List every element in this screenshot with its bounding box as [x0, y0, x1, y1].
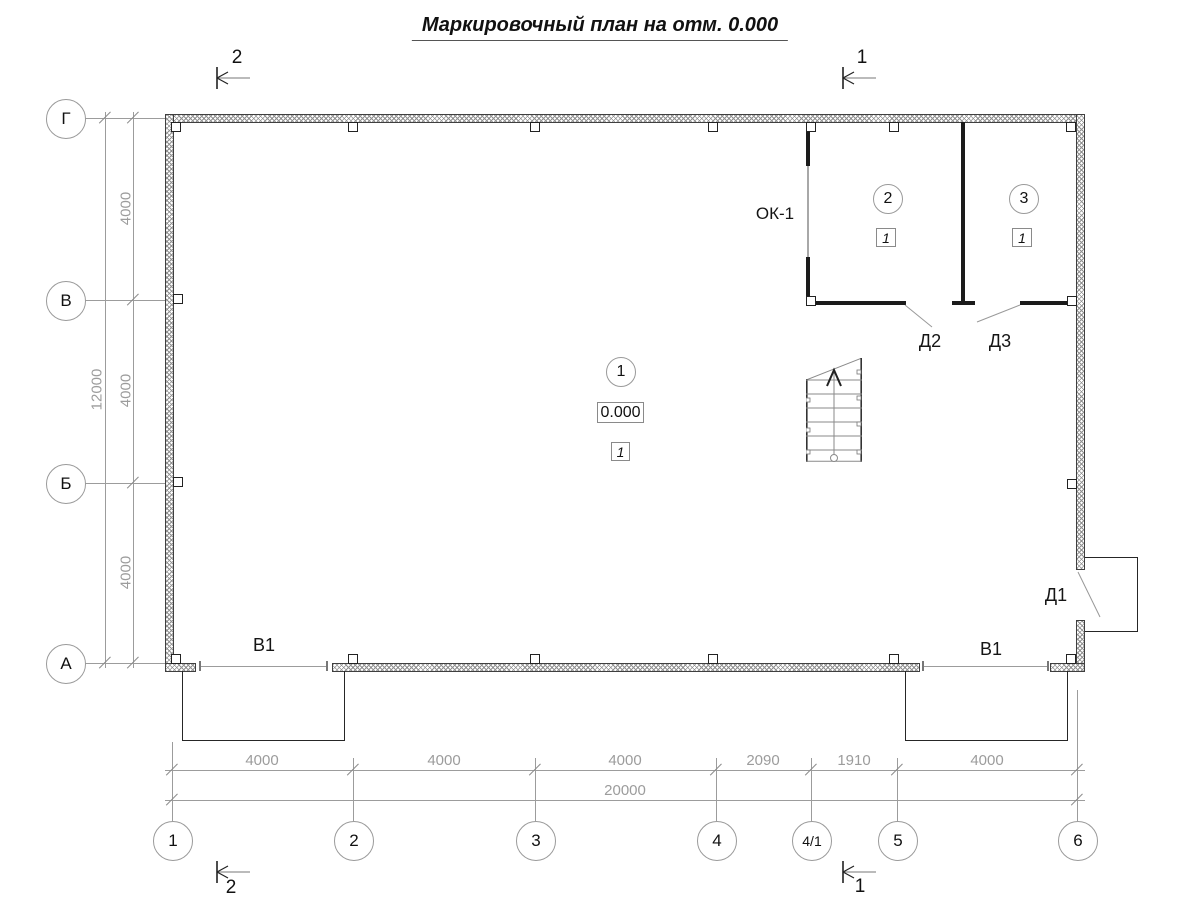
- column: [171, 122, 181, 132]
- column: [1067, 479, 1077, 489]
- grid-label: 1: [168, 831, 177, 851]
- grid-bubble-col-3: 3: [516, 821, 556, 861]
- column: [1067, 296, 1077, 306]
- grid-label: 6: [1073, 831, 1082, 851]
- row-axis-line: [84, 300, 165, 301]
- column: [173, 477, 183, 487]
- section-number: 1: [850, 876, 870, 898]
- room-1-finish-box: 1: [611, 442, 630, 461]
- grid-bubble-row-a: А: [46, 644, 86, 684]
- section-number: 1: [852, 47, 872, 69]
- floor-plan-canvas: Маркировочный план на отм. 0.000 4000 40…: [0, 0, 1200, 900]
- grid-bubble-col-4-1: 4/1: [792, 821, 832, 861]
- column: [889, 654, 899, 664]
- column: [708, 122, 718, 132]
- grid-bubble-col-2: 2: [334, 821, 374, 861]
- grid-label: А: [60, 654, 71, 674]
- grid-label: Г: [61, 109, 70, 129]
- grid-bubble-row-g: Г: [46, 99, 86, 139]
- dim-text: 4000: [232, 752, 292, 769]
- column: [806, 296, 816, 306]
- column: [171, 654, 181, 664]
- grid-bubble-row-b: Б: [46, 464, 86, 504]
- grid-bubble-col-1: 1: [153, 821, 193, 861]
- gate-end-tick: [922, 661, 924, 671]
- dim-text-total: 12000: [89, 358, 106, 422]
- porch-door-d1: [1085, 557, 1138, 632]
- col-axis-line: [1077, 690, 1078, 821]
- dim-text: 4000: [118, 179, 135, 239]
- grid-label: 4/1: [802, 833, 821, 849]
- room-number: 2: [884, 190, 893, 208]
- column: [530, 654, 540, 664]
- staircase: [806, 358, 862, 462]
- column: [708, 654, 718, 664]
- section-number: 2: [221, 877, 241, 899]
- grid-label: 2: [349, 831, 358, 851]
- bottom-dim-line-inner: [165, 770, 1085, 771]
- row-axis-line: [84, 118, 165, 119]
- section-number: 2: [227, 47, 247, 69]
- grid-label: 4: [712, 831, 721, 851]
- dim-text-total: 20000: [593, 782, 657, 799]
- row-axis-line: [84, 663, 165, 664]
- level-value: 0.000: [600, 404, 640, 422]
- room-2-finish-box: 1: [876, 228, 896, 247]
- dim-text: 4000: [595, 752, 655, 769]
- grid-bubble-col-5: 5: [878, 821, 918, 861]
- wall-left: [165, 114, 174, 672]
- grid-label: 5: [893, 831, 902, 851]
- partition-room2-room3: [961, 122, 965, 305]
- bottom-dim-line-outer: [165, 800, 1085, 801]
- dim-text: 4000: [118, 543, 135, 603]
- gate-v1-left-label: В1: [246, 635, 282, 656]
- gate-v1-right-label: В1: [973, 639, 1009, 660]
- col-axis-line: [172, 742, 173, 821]
- room-number: 3: [1020, 190, 1029, 208]
- row-axis-line: [84, 483, 165, 484]
- column: [173, 294, 183, 304]
- column: [348, 122, 358, 132]
- partition-foot: [952, 301, 975, 305]
- door-d3-label: Д3: [982, 331, 1018, 352]
- column: [348, 654, 358, 664]
- column: [530, 122, 540, 132]
- porch-right: [905, 671, 1068, 741]
- gate-end-tick: [1047, 661, 1049, 671]
- grid-bubble-col-4: 4: [697, 821, 737, 861]
- column: [1066, 654, 1076, 664]
- dim-text: 4000: [957, 752, 1017, 769]
- column: [806, 122, 816, 132]
- room-2-number-bubble: 2: [873, 184, 903, 214]
- door-d1-label: Д1: [1038, 585, 1074, 606]
- dim-text: 2090: [733, 752, 793, 769]
- grid-label: В: [60, 291, 71, 311]
- staircase-drawing: [806, 358, 862, 462]
- room-1-level-box: 0.000: [597, 402, 644, 423]
- gate-line-right: [923, 666, 1048, 667]
- room-3-number-bubble: 3: [1009, 184, 1039, 214]
- window-ok1-label: ОК-1: [750, 204, 800, 224]
- finish-type: 1: [617, 444, 625, 460]
- column: [889, 122, 899, 132]
- room-number: 1: [617, 363, 626, 381]
- gate-line-left: [200, 666, 327, 667]
- grid-label: Б: [60, 474, 71, 494]
- grid-bubble-col-6: 6: [1058, 821, 1098, 861]
- partition-rooms-bottom-seg1: [806, 301, 906, 305]
- column: [1066, 122, 1076, 132]
- wall-right-upper: [1076, 114, 1085, 570]
- dim-text: 4000: [414, 752, 474, 769]
- finish-type: 1: [1018, 230, 1026, 246]
- grid-label: 3: [531, 831, 540, 851]
- room-3-finish-box: 1: [1012, 228, 1032, 247]
- grid-bubble-row-v: В: [46, 281, 86, 321]
- wall-bottom-seg2: [332, 663, 920, 672]
- finish-type: 1: [882, 230, 890, 246]
- drawing-title: Маркировочный план на отм. 0.000: [412, 14, 788, 41]
- wall-top: [165, 114, 1085, 123]
- door-d2-label: Д2: [912, 331, 948, 352]
- dim-text: 4000: [118, 361, 135, 421]
- window-ok1-line: [807, 166, 809, 257]
- room-1-number-bubble: 1: [606, 357, 636, 387]
- dim-text: 1910: [824, 752, 884, 769]
- gate-end-tick: [326, 661, 328, 671]
- porch-left: [182, 671, 345, 741]
- gate-end-tick: [199, 661, 201, 671]
